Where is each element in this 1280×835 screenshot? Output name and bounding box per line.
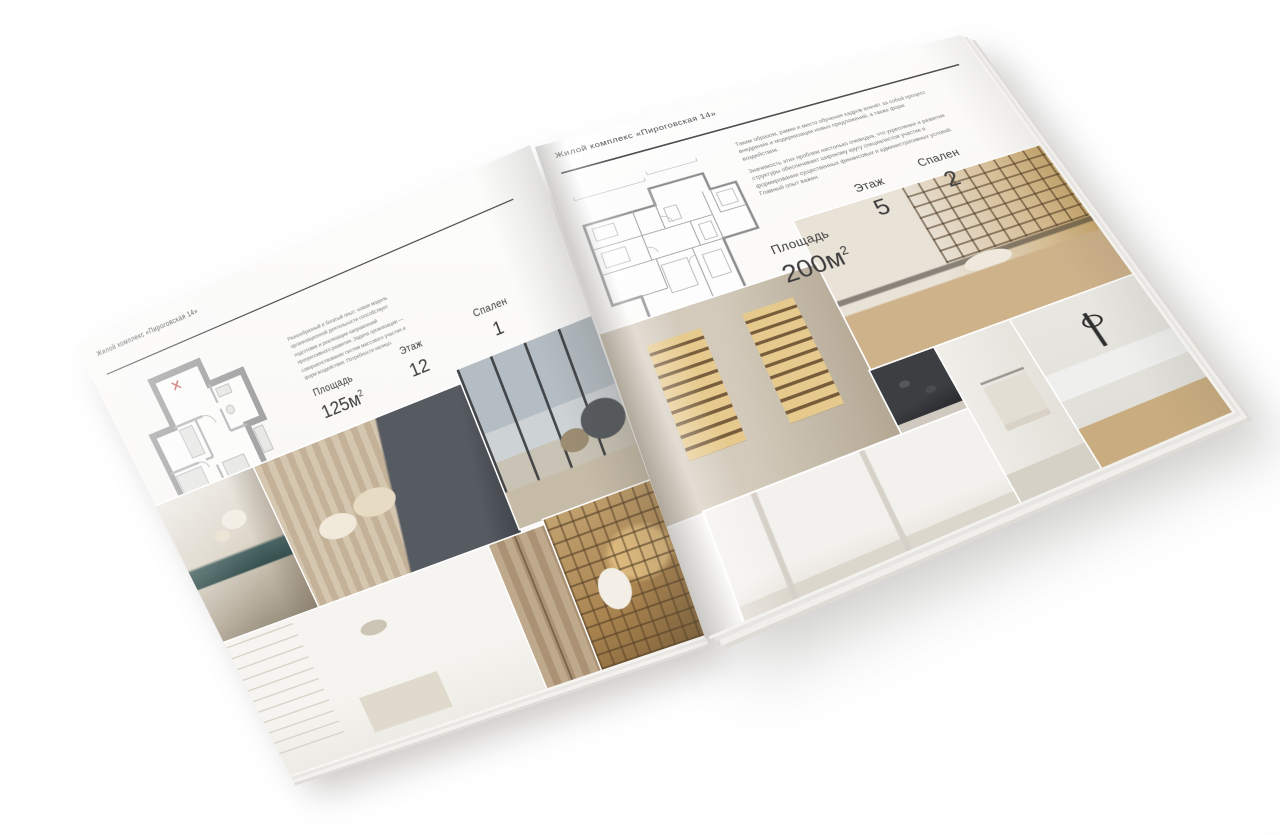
description-text-left: Разнообразный и богатый опыт: новая моде… bbox=[286, 291, 415, 384]
brochure-mockup-scene: Жилой комплекс «Пироговская 14» Разнообр… bbox=[0, 0, 1280, 835]
stat-bedrooms-left: Спален 1 bbox=[466, 293, 524, 349]
complex-name-left: Жилой комплекс «Пироговская 14» bbox=[96, 308, 200, 358]
